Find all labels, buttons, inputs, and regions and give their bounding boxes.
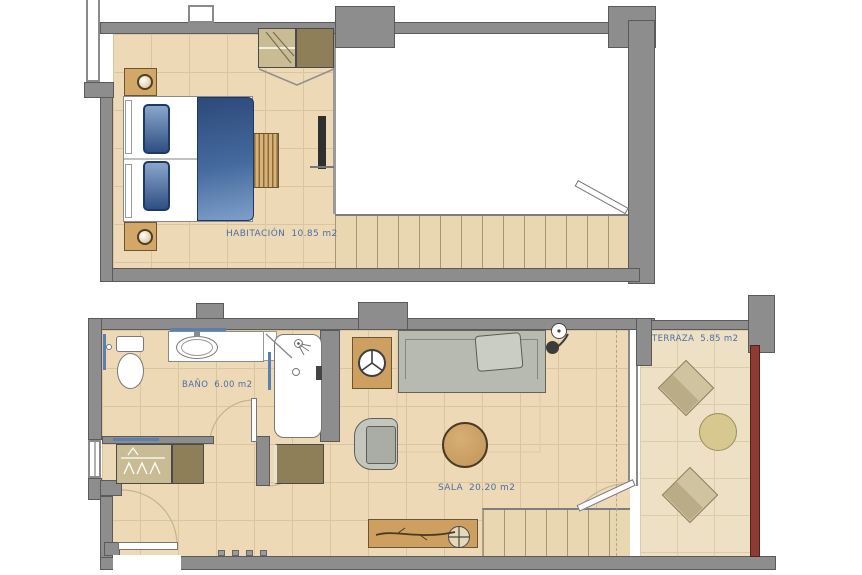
tub-glass-screen xyxy=(268,352,271,390)
hall-wardrobe-2 xyxy=(274,444,324,484)
toilet-tank xyxy=(116,336,144,352)
decor-bowl xyxy=(448,526,470,548)
lower-wall-bottom xyxy=(100,556,776,570)
hall-pillar xyxy=(256,436,270,486)
living-label-name: SALA xyxy=(438,483,463,493)
tub-handle xyxy=(316,366,322,380)
neighbor-wall-horizontal xyxy=(84,82,114,98)
bathroom-label-name: BAÑO xyxy=(182,380,208,390)
pillow-1 xyxy=(143,104,170,154)
headboard-1 xyxy=(125,100,132,154)
bed-bench xyxy=(253,133,279,188)
window-frame-line xyxy=(94,442,96,476)
upper-wall-right xyxy=(628,20,655,284)
terrace-table xyxy=(699,413,737,451)
bathroom-label: BAÑO6.00 m2 xyxy=(182,380,252,390)
bathroom-door-leaf xyxy=(251,398,257,442)
bathtub xyxy=(274,334,322,438)
terrace-floor xyxy=(640,330,752,556)
wall-vent-dot xyxy=(232,550,239,556)
living-label-area: 20.20 m2 xyxy=(469,483,515,493)
floorplan-image: HABITACIÓN10.85 m2 xyxy=(0,0,862,575)
bedroom-wardrobe-open-section xyxy=(258,28,296,68)
wall-tv xyxy=(318,116,326,169)
terrace-railing xyxy=(750,345,760,557)
terrace-label: TERRAZA5.85 m2 xyxy=(652,334,738,344)
hall-wardrobe-closed-section xyxy=(172,444,204,484)
tile-accent-left xyxy=(103,334,106,370)
headboard-2 xyxy=(125,164,132,218)
terrace-label-name: TERRAZA xyxy=(652,334,694,344)
lower-wall-column-mid xyxy=(358,302,408,330)
upper-wall-left xyxy=(100,94,113,282)
nightstand-top xyxy=(124,68,157,96)
tub-drain xyxy=(292,368,300,376)
coffee-table xyxy=(442,422,488,468)
armchair-seat xyxy=(366,426,396,464)
floor-lamp-icon xyxy=(546,341,559,354)
lower-shaft xyxy=(196,303,224,319)
wall-vent-dot xyxy=(260,550,267,556)
toilet-bowl xyxy=(117,353,144,389)
living-label: SALA20.20 m2 xyxy=(438,483,515,493)
bedroom-wardrobe-closed-section xyxy=(296,28,334,68)
table-lamp-icon xyxy=(137,229,153,245)
terrace-label-area: 5.85 m2 xyxy=(700,334,738,344)
sofa-pillow xyxy=(475,332,524,372)
pillow-2 xyxy=(143,161,170,211)
terrace-corner-column xyxy=(636,318,652,366)
terrace-wall-top xyxy=(640,320,752,330)
upper-wall-bottom xyxy=(100,268,640,282)
bedroom-label: HABITACIÓN10.85 m2 xyxy=(226,229,338,239)
blue-duvet xyxy=(197,97,254,221)
wall-vent-dot xyxy=(246,550,253,556)
bedroom-label-name: HABITACIÓN xyxy=(226,229,285,239)
lower-stairs xyxy=(482,508,630,556)
tile-accent-south xyxy=(113,438,159,441)
shower-head-icon xyxy=(294,339,303,348)
sink-inner xyxy=(181,339,213,356)
bedroom-label-area: 10.85 m2 xyxy=(291,229,337,239)
upper-stairs xyxy=(335,214,630,268)
bathroom-wall-right xyxy=(320,330,340,442)
entry-opening xyxy=(113,555,181,571)
sofa xyxy=(398,330,546,393)
nightstand-bottom xyxy=(124,222,157,251)
table-lamp-icon xyxy=(137,74,153,90)
decor-lamp xyxy=(358,349,386,377)
tile-accent-counter xyxy=(170,328,226,331)
left-window xyxy=(88,440,101,478)
hall-wardrobe-open-section xyxy=(116,444,172,484)
neighbor-wall-vertical xyxy=(86,0,100,82)
upper-shaft xyxy=(188,5,214,23)
ceiling-light-icon xyxy=(551,323,567,339)
tv-shelf-line xyxy=(310,166,334,168)
upper-wall-column-mid xyxy=(335,6,395,48)
wall-vent-dot xyxy=(218,550,225,556)
sliding-panel-dashed-line xyxy=(616,330,617,556)
bathroom-label-area: 6.00 m2 xyxy=(214,380,252,390)
sink-faucet xyxy=(194,332,200,337)
entry-door-leaf xyxy=(118,542,178,550)
lower-wall-left-a xyxy=(88,318,102,440)
toilet-button xyxy=(106,344,112,350)
